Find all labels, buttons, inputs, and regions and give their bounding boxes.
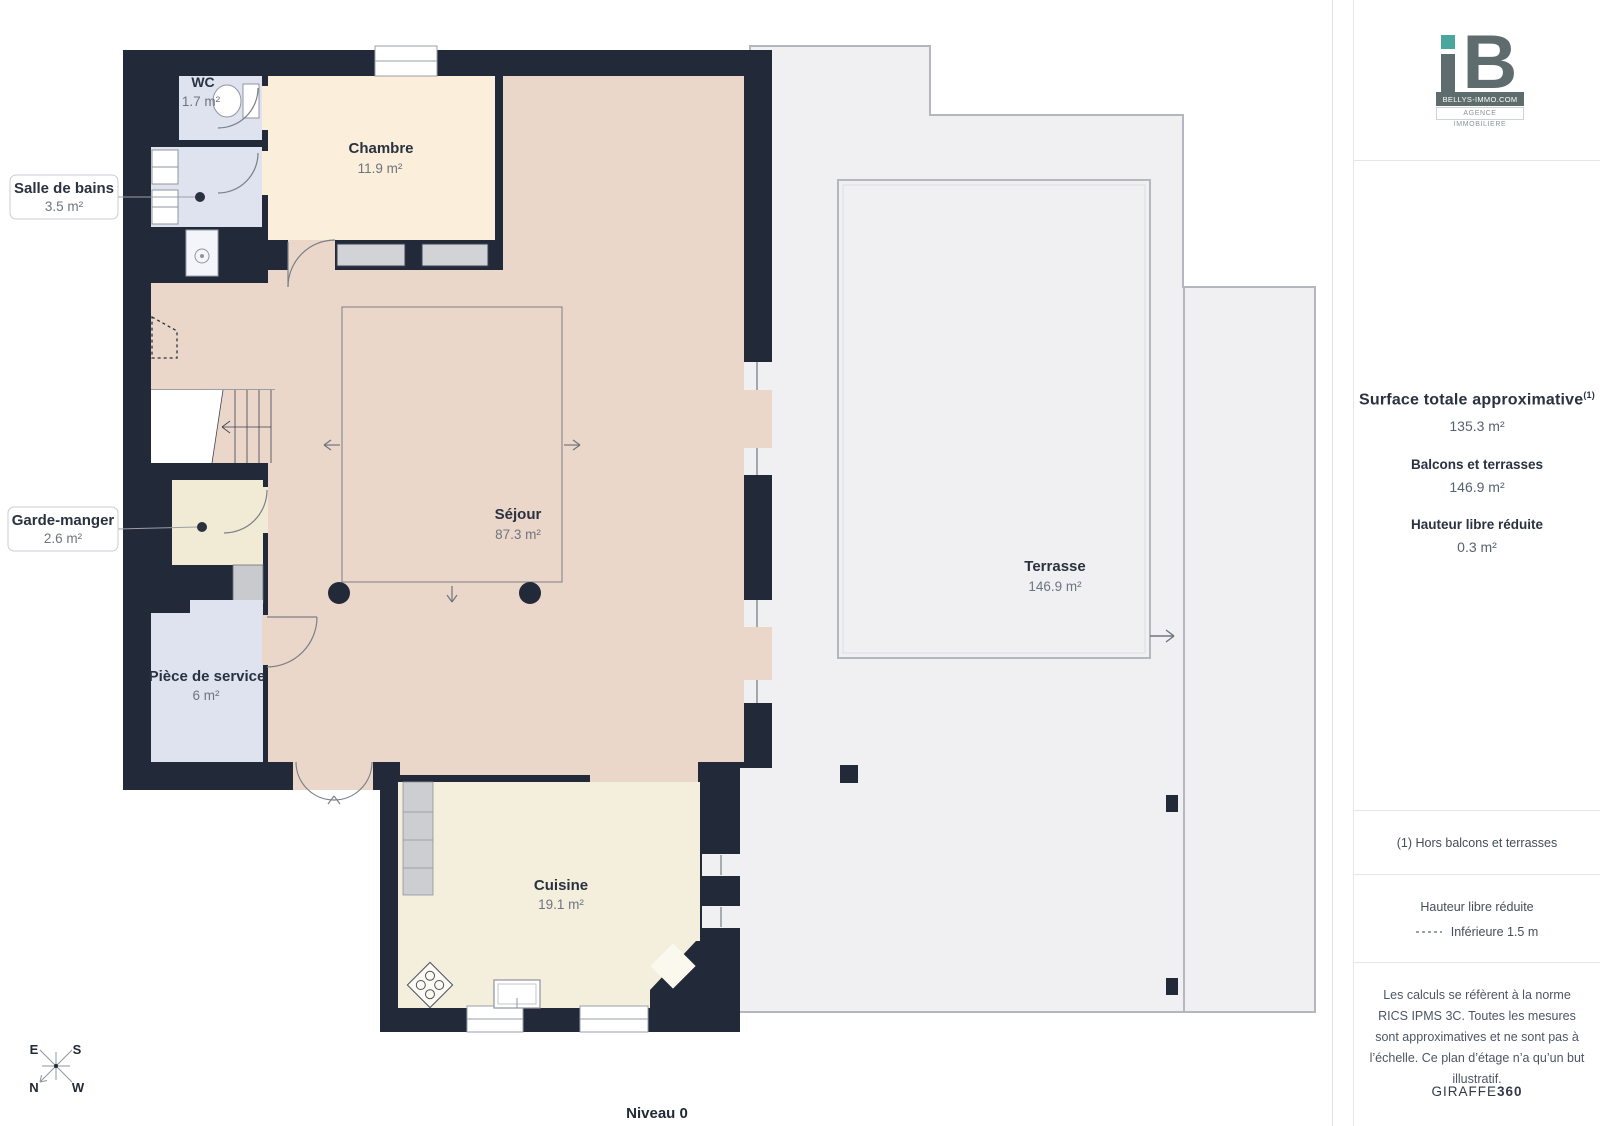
room-label: Séjour: [495, 506, 542, 523]
shower-tray: [186, 230, 218, 276]
section-divider: [1353, 810, 1600, 811]
reduced-height-label: Hauteur libre réduite: [1353, 517, 1600, 532]
terrace-post: [1166, 795, 1178, 812]
room-label: WC: [191, 74, 214, 90]
logo-domain-text: BELLYS-IMMO.COM: [1436, 92, 1524, 106]
surface-total-value: 135.3 m²: [1353, 418, 1600, 434]
info-card: [1353, 0, 1600, 1126]
section-divider: [1353, 160, 1600, 161]
logo-tagline: AGENCE IMMOBILIERE: [1436, 107, 1524, 120]
reduced-height-value: 0.3 m²: [1353, 539, 1600, 555]
room-area: 1.7 m²: [182, 94, 221, 109]
chambre-door-gap: [288, 240, 335, 270]
terrace-area: [738, 46, 1315, 1012]
terrace-post: [1166, 978, 1178, 995]
footnote-marker: (1): [1583, 390, 1595, 400]
chambre-floor: [268, 76, 495, 240]
legend-row: Inférieure 1.5 m: [1353, 925, 1600, 939]
cuisine-floor: [398, 782, 700, 1008]
kitchen-counter: [403, 782, 433, 895]
room-label: Chambre: [348, 140, 413, 157]
room-label: Pièce de service: [149, 668, 266, 685]
floor-plan-canvas: WC 1.7 m² Chambre 11.9 m² Séjour 87.3 m²…: [0, 0, 1332, 1126]
kitchen-sink: [494, 980, 540, 1008]
column: [328, 582, 350, 604]
giraffe360-brand: GIRAFFE360: [1353, 1084, 1600, 1099]
svg-text:Garde-manger: Garde-manger: [12, 512, 115, 529]
compass-rose: E S N W: [29, 1042, 85, 1095]
room-area: 11.9 m²: [358, 161, 403, 176]
terrace-floor: [738, 46, 1315, 1012]
svg-text:3.5 m²: 3.5 m²: [45, 199, 84, 214]
column: [519, 582, 541, 604]
interior-window: [422, 244, 488, 266]
footnote-text: (1) Hors balcons et terrasses: [1353, 836, 1600, 850]
svg-text:E: E: [30, 1042, 39, 1057]
interior-window: [337, 244, 405, 266]
logo-i-stem: [1441, 54, 1455, 92]
logo-monogram: B: [1456, 16, 1524, 94]
info-panel: B BELLYS-IMMO.COM AGENCE IMMOBILIERE Sur…: [1332, 0, 1600, 1126]
room-area: 87.3 m²: [495, 527, 541, 542]
room-area: 19.1 m²: [538, 897, 584, 912]
svg-text:W: W: [72, 1080, 85, 1095]
svg-text:S: S: [73, 1042, 82, 1057]
balconies-value: 146.9 m²: [1353, 479, 1600, 495]
cuisine-top-wall: [398, 775, 590, 782]
svg-text:Salle de bains: Salle de bains: [14, 180, 114, 197]
svg-text:2.6 m²: 2.6 m²: [44, 531, 83, 546]
terrace-pillar: [840, 765, 858, 783]
room-label: Cuisine: [534, 877, 588, 894]
svg-text:N: N: [29, 1080, 38, 1095]
room-area: 6 m²: [193, 688, 221, 703]
level-title: Niveau 0: [626, 1105, 688, 1122]
floor-plan-page: WC 1.7 m² Chambre 11.9 m² Séjour 87.3 m²…: [0, 0, 1600, 1126]
disclaimer-text: Les calculs se réfèrent à la norme RICS …: [1367, 985, 1587, 1090]
garde-manger-floor: [172, 480, 263, 565]
counter-block: [233, 565, 263, 603]
surface-total-title: Surface totale approximative(1): [1353, 390, 1600, 409]
room-area: 146.9 m²: [1028, 579, 1082, 594]
room-label: Terrasse: [1024, 558, 1085, 575]
dashed-line-sample: [1416, 931, 1442, 933]
section-divider: [1353, 962, 1600, 963]
logo-accent-square: [1441, 35, 1455, 49]
legend-title: Hauteur libre réduite: [1353, 900, 1600, 914]
agency-logo: B BELLYS-IMMO.COM AGENCE IMMOBILIERE: [1436, 30, 1524, 124]
balconies-label: Balcons et terrasses: [1353, 457, 1600, 472]
section-divider: [1353, 874, 1600, 875]
